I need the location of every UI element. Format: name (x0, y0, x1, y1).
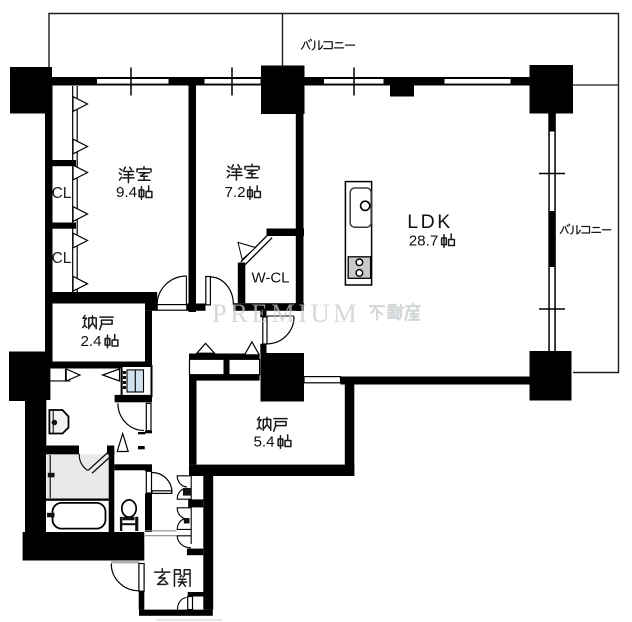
svg-text:9.4: 9.4 (116, 184, 137, 201)
svg-text:CL: CL (52, 185, 72, 202)
svg-text:W-CL: W-CL (251, 270, 289, 287)
svg-text:5.4: 5.4 (253, 434, 274, 451)
svg-text:2.4: 2.4 (80, 333, 101, 350)
svg-text:LDK: LDK (407, 211, 452, 233)
svg-text:7.2: 7.2 (224, 184, 245, 201)
svg-text:PREMIUM: PREMIUM (212, 298, 360, 328)
svg-text:CL: CL (52, 250, 72, 267)
svg-text:28.7: 28.7 (409, 233, 439, 250)
